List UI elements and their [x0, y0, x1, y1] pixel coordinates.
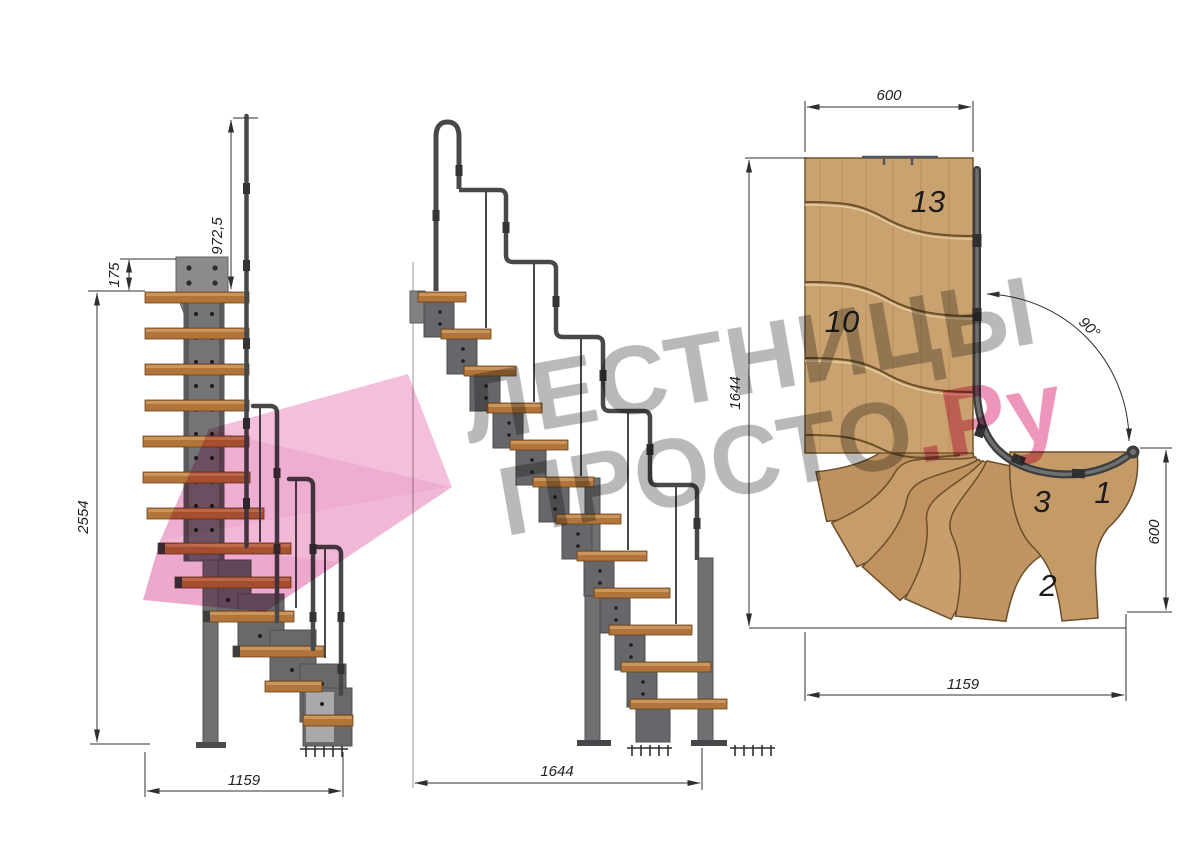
- step-number-2: 2: [1038, 568, 1056, 603]
- modular-stair-blueprint: 972,5 175 2554 1159: [0, 0, 1200, 849]
- dim-front-width: 1159: [228, 772, 261, 789]
- dim-plan-right-height: 600: [1146, 519, 1163, 545]
- dim-rail-height: 972,5: [209, 217, 226, 255]
- dim-plan-bottom-width: 1159: [947, 676, 980, 693]
- dim-plate-offset: 175: [106, 262, 123, 288]
- top-mounting-plate: [176, 257, 228, 293]
- dim-turn-angle: 90°: [1075, 314, 1103, 342]
- dim-plan-top-width: 600: [876, 87, 902, 104]
- step-number-13: 13: [911, 184, 945, 219]
- step-number-3: 3: [1033, 484, 1050, 519]
- dim-total-height: 2554: [75, 500, 92, 534]
- dim-side-length: 1644: [540, 763, 573, 780]
- side-floor-anchors: [627, 745, 775, 756]
- floor-anchors: [300, 746, 348, 757]
- step-number-1: 1: [1094, 475, 1111, 510]
- stair-drawing-canvas: 972,5 175 2554 1159: [0, 0, 1200, 849]
